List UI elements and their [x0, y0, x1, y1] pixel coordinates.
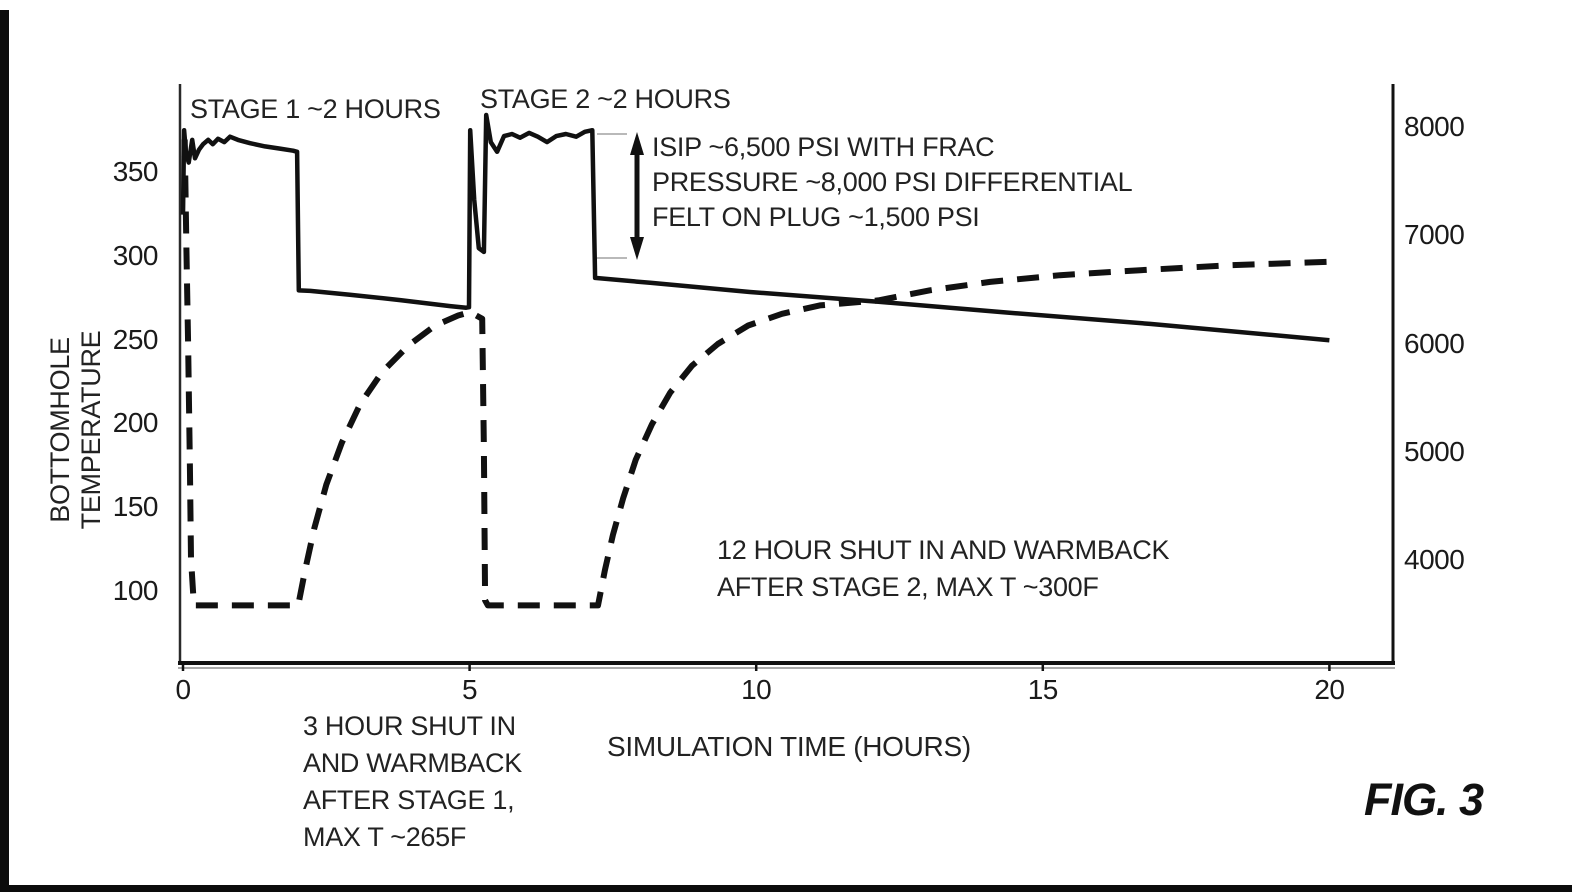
y-left-tick-label: 300	[88, 240, 158, 272]
x-tick-label: 20	[1299, 674, 1359, 706]
y-right-tick-label: 7000	[1404, 219, 1494, 251]
y-left-tick-label: 100	[88, 575, 158, 607]
y-right-tick-label: 4000	[1404, 544, 1494, 576]
y-left-tick-label: 150	[88, 491, 158, 523]
x-tick-label: 5	[440, 674, 500, 706]
x-tick-label: 10	[726, 674, 786, 706]
y-left-tick-label: 200	[88, 407, 158, 439]
stage2-annotation: STAGE 2 ~2 HOURS	[480, 84, 731, 115]
stage1-annotation: STAGE 1 ~2 HOURS	[190, 94, 441, 125]
figure-label: FIG. 3	[1364, 774, 1483, 826]
isip-annotation: ISIP ~6,500 PSI WITH FRAC PRESSURE ~8,00…	[652, 130, 1132, 235]
shut-in-3hr-annotation: 3 HOUR SHUT IN AND WARMBACK AFTER STAGE …	[303, 708, 522, 856]
y-left-tick-label: 250	[88, 324, 158, 356]
y-right-tick-label: 8000	[1404, 111, 1494, 143]
y-right-tick-label: 6000	[1404, 328, 1494, 360]
x-tick-label: 15	[1013, 674, 1073, 706]
shut-in-12hr-annotation: 12 HOUR SHUT IN AND WARMBACK AFTER STAGE…	[717, 532, 1169, 606]
y-left-tick-label: 350	[88, 156, 158, 188]
x-tick-label: 0	[153, 674, 213, 706]
x-axis-title: SIMULATION TIME (HOURS)	[607, 731, 971, 763]
isip-differential-arrow	[630, 132, 644, 260]
y-right-tick-label: 5000	[1404, 436, 1494, 468]
